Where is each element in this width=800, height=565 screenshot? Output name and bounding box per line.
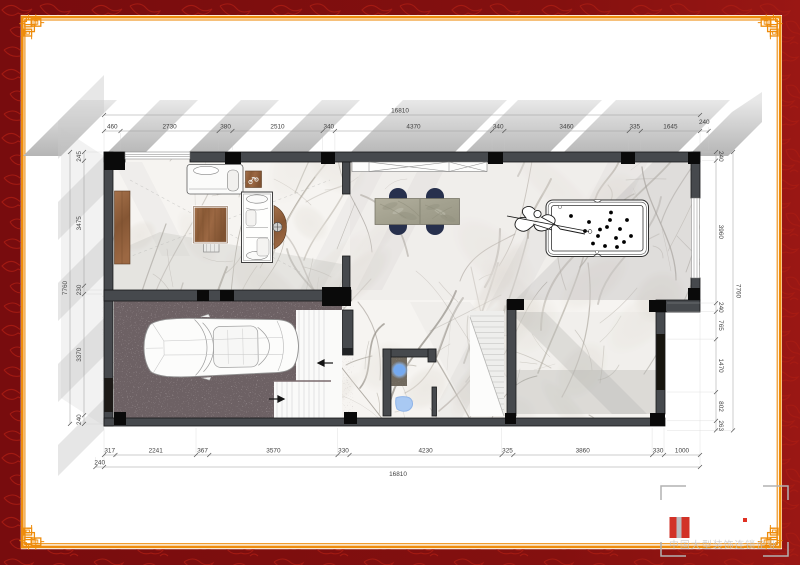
svg-text:230: 230 [76, 284, 83, 295]
svg-text:3570: 3570 [266, 448, 281, 455]
svg-text:340: 340 [323, 124, 334, 131]
svg-text:2241: 2241 [149, 448, 164, 455]
svg-text:3475: 3475 [76, 216, 83, 231]
svg-text:3860: 3860 [576, 448, 591, 455]
svg-text:1000: 1000 [675, 448, 690, 455]
svg-text:240: 240 [76, 414, 83, 425]
svg-text:380: 380 [220, 124, 231, 131]
svg-text:1645: 1645 [663, 124, 678, 131]
svg-text:245: 245 [76, 151, 83, 162]
svg-text:3460: 3460 [559, 124, 574, 131]
svg-text:317: 317 [104, 448, 115, 455]
svg-text:中国大型装饰连锁企业: 中国大型装饰连锁企业 [669, 539, 778, 552]
svg-text:240: 240 [717, 302, 724, 313]
svg-text:335: 335 [629, 124, 640, 131]
svg-text:7760: 7760 [62, 280, 69, 295]
svg-text:340: 340 [493, 124, 504, 131]
svg-text:3370: 3370 [76, 347, 83, 362]
svg-text:16810: 16810 [391, 108, 409, 115]
svg-text:3960: 3960 [717, 225, 724, 240]
svg-text:367: 367 [197, 448, 208, 455]
svg-text:1470: 1470 [717, 358, 724, 373]
svg-text:240: 240 [699, 119, 710, 126]
svg-text:2730: 2730 [162, 124, 177, 131]
svg-text:330: 330 [653, 448, 664, 455]
svg-text:765: 765 [717, 320, 724, 331]
svg-text:240: 240 [717, 151, 724, 162]
svg-text:7760: 7760 [735, 284, 742, 299]
svg-text:263: 263 [717, 420, 724, 431]
svg-text:325: 325 [502, 448, 513, 455]
svg-text:460: 460 [107, 124, 118, 131]
svg-text:16810: 16810 [389, 471, 407, 478]
svg-text:4230: 4230 [418, 448, 433, 455]
svg-text:4370: 4370 [406, 124, 421, 131]
svg-text:330: 330 [338, 448, 349, 455]
svg-text:2510: 2510 [270, 124, 285, 131]
svg-text:802: 802 [717, 401, 724, 412]
svg-text:240: 240 [94, 460, 105, 467]
